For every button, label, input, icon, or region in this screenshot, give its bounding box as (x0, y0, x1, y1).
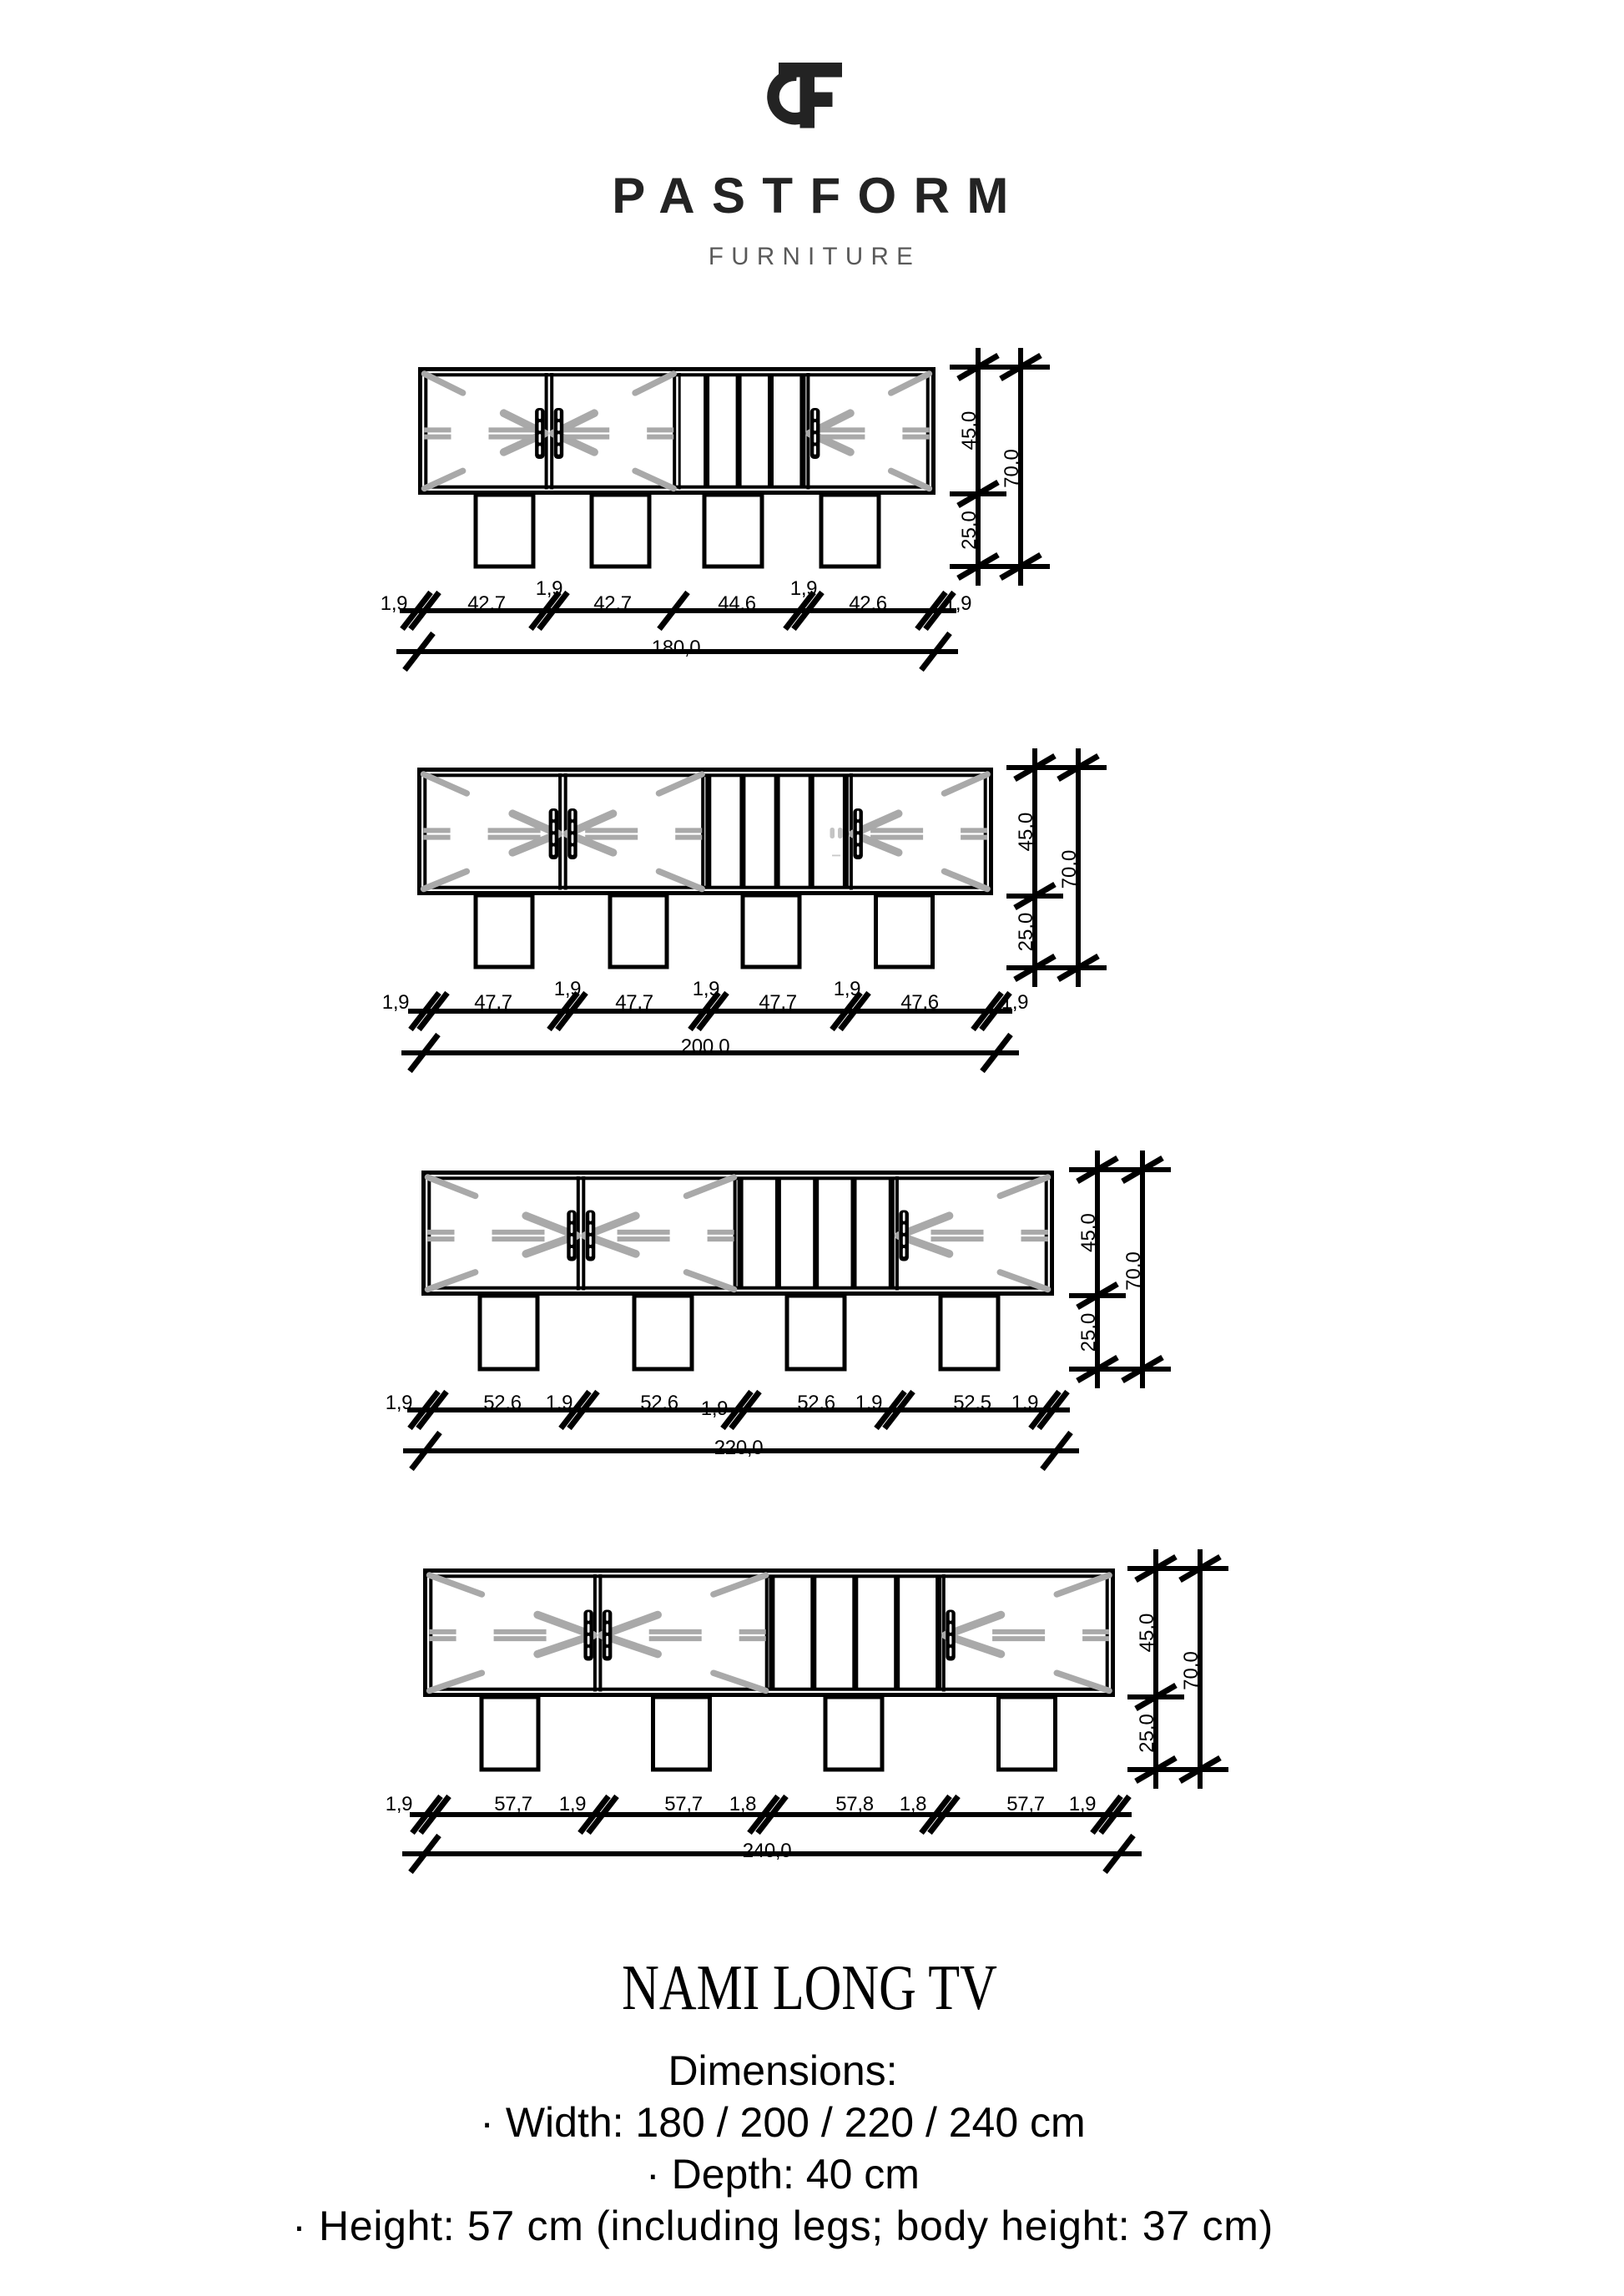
svg-text:1,9: 1,9 (386, 1793, 412, 1815)
svg-text:1,9: 1,9 (1069, 1793, 1096, 1815)
svg-text:200,0: 200,0 (681, 1035, 730, 1058)
svg-text:45.0: 45.0 (958, 411, 981, 451)
svg-text:45.0: 45.0 (1136, 1614, 1158, 1653)
svg-text:47,7: 47,7 (474, 991, 512, 1014)
svg-text:1,9: 1,9 (381, 592, 407, 615)
svg-text:· Height: 57 cm (including leg: · Height: 57 cm (including legs; body he… (292, 2203, 1273, 2249)
svg-text:70.0: 70.0 (1058, 850, 1081, 889)
svg-text:70.0: 70.0 (1122, 1251, 1145, 1291)
svg-text:1,9: 1,9 (1011, 1392, 1038, 1414)
svg-text:PASTFORM: PASTFORM (612, 168, 1025, 224)
svg-text:57,7: 57,7 (1006, 1793, 1045, 1815)
svg-text:1,9: 1,9 (536, 577, 562, 600)
svg-text:1,9: 1,9 (1001, 991, 1028, 1014)
svg-text:42,7: 42,7 (467, 592, 506, 615)
svg-text:57,8: 57,8 (835, 1793, 874, 1815)
svg-text:1,9: 1,9 (945, 592, 971, 615)
svg-text:1,9: 1,9 (554, 978, 581, 1000)
svg-text:42,7: 42,7 (593, 592, 632, 615)
svg-text:1,9: 1,9 (559, 1793, 586, 1815)
svg-text:Dimensions:: Dimensions: (668, 2047, 897, 2094)
svg-text:47,7: 47,7 (615, 991, 653, 1014)
svg-text:220,0: 220,0 (714, 1437, 764, 1459)
svg-text:NAMI LONG TV: NAMI LONG TV (622, 1953, 997, 2024)
svg-text:1,8: 1,8 (729, 1793, 756, 1815)
svg-text:1,8: 1,8 (900, 1793, 926, 1815)
svg-text:25.0: 25.0 (958, 511, 981, 550)
svg-text:47,6: 47,6 (900, 991, 939, 1014)
svg-text:240,0: 240,0 (743, 1840, 792, 1862)
svg-text:25.0: 25.0 (1077, 1313, 1100, 1352)
svg-text:· Width: 180 / 200 / 220 / 240: · Width: 180 / 200 / 220 / 240 cm (480, 2099, 1085, 2146)
svg-text:25.0: 25.0 (1015, 913, 1037, 952)
svg-text:1,9: 1,9 (546, 1392, 572, 1414)
svg-text:25.0: 25.0 (1136, 1714, 1158, 1753)
svg-text:52.6: 52.6 (640, 1392, 678, 1414)
svg-text:FURNITURE: FURNITURE (709, 243, 920, 270)
svg-text:1,9: 1,9 (834, 978, 860, 1000)
svg-text:45.0: 45.0 (1015, 813, 1037, 852)
svg-text:70.0: 70.0 (1180, 1651, 1203, 1690)
svg-text:70.0: 70.0 (1001, 449, 1023, 488)
svg-text:52.5: 52.5 (953, 1392, 991, 1414)
svg-text:52.6: 52.6 (797, 1392, 835, 1414)
svg-text:52.6: 52.6 (483, 1392, 522, 1414)
svg-text:42,6: 42,6 (849, 592, 887, 615)
svg-text:57,7: 57,7 (664, 1793, 703, 1815)
svg-text:1,9: 1,9 (386, 1392, 412, 1414)
svg-text:1,9: 1,9 (693, 978, 719, 1000)
svg-text:45.0: 45.0 (1077, 1213, 1100, 1252)
svg-text:180,0: 180,0 (652, 637, 701, 659)
svg-text:1,9: 1,9 (701, 1397, 728, 1420)
svg-text:47,7: 47,7 (759, 991, 797, 1014)
svg-text:44,6: 44,6 (718, 592, 756, 615)
svg-text:1,9: 1,9 (855, 1392, 882, 1414)
svg-text:1,9: 1,9 (382, 991, 409, 1014)
svg-text:· Depth: 40 cm: · Depth: 40 cm (646, 2151, 920, 2198)
svg-text:57,7: 57,7 (494, 1793, 532, 1815)
svg-text:1,9: 1,9 (790, 577, 817, 600)
